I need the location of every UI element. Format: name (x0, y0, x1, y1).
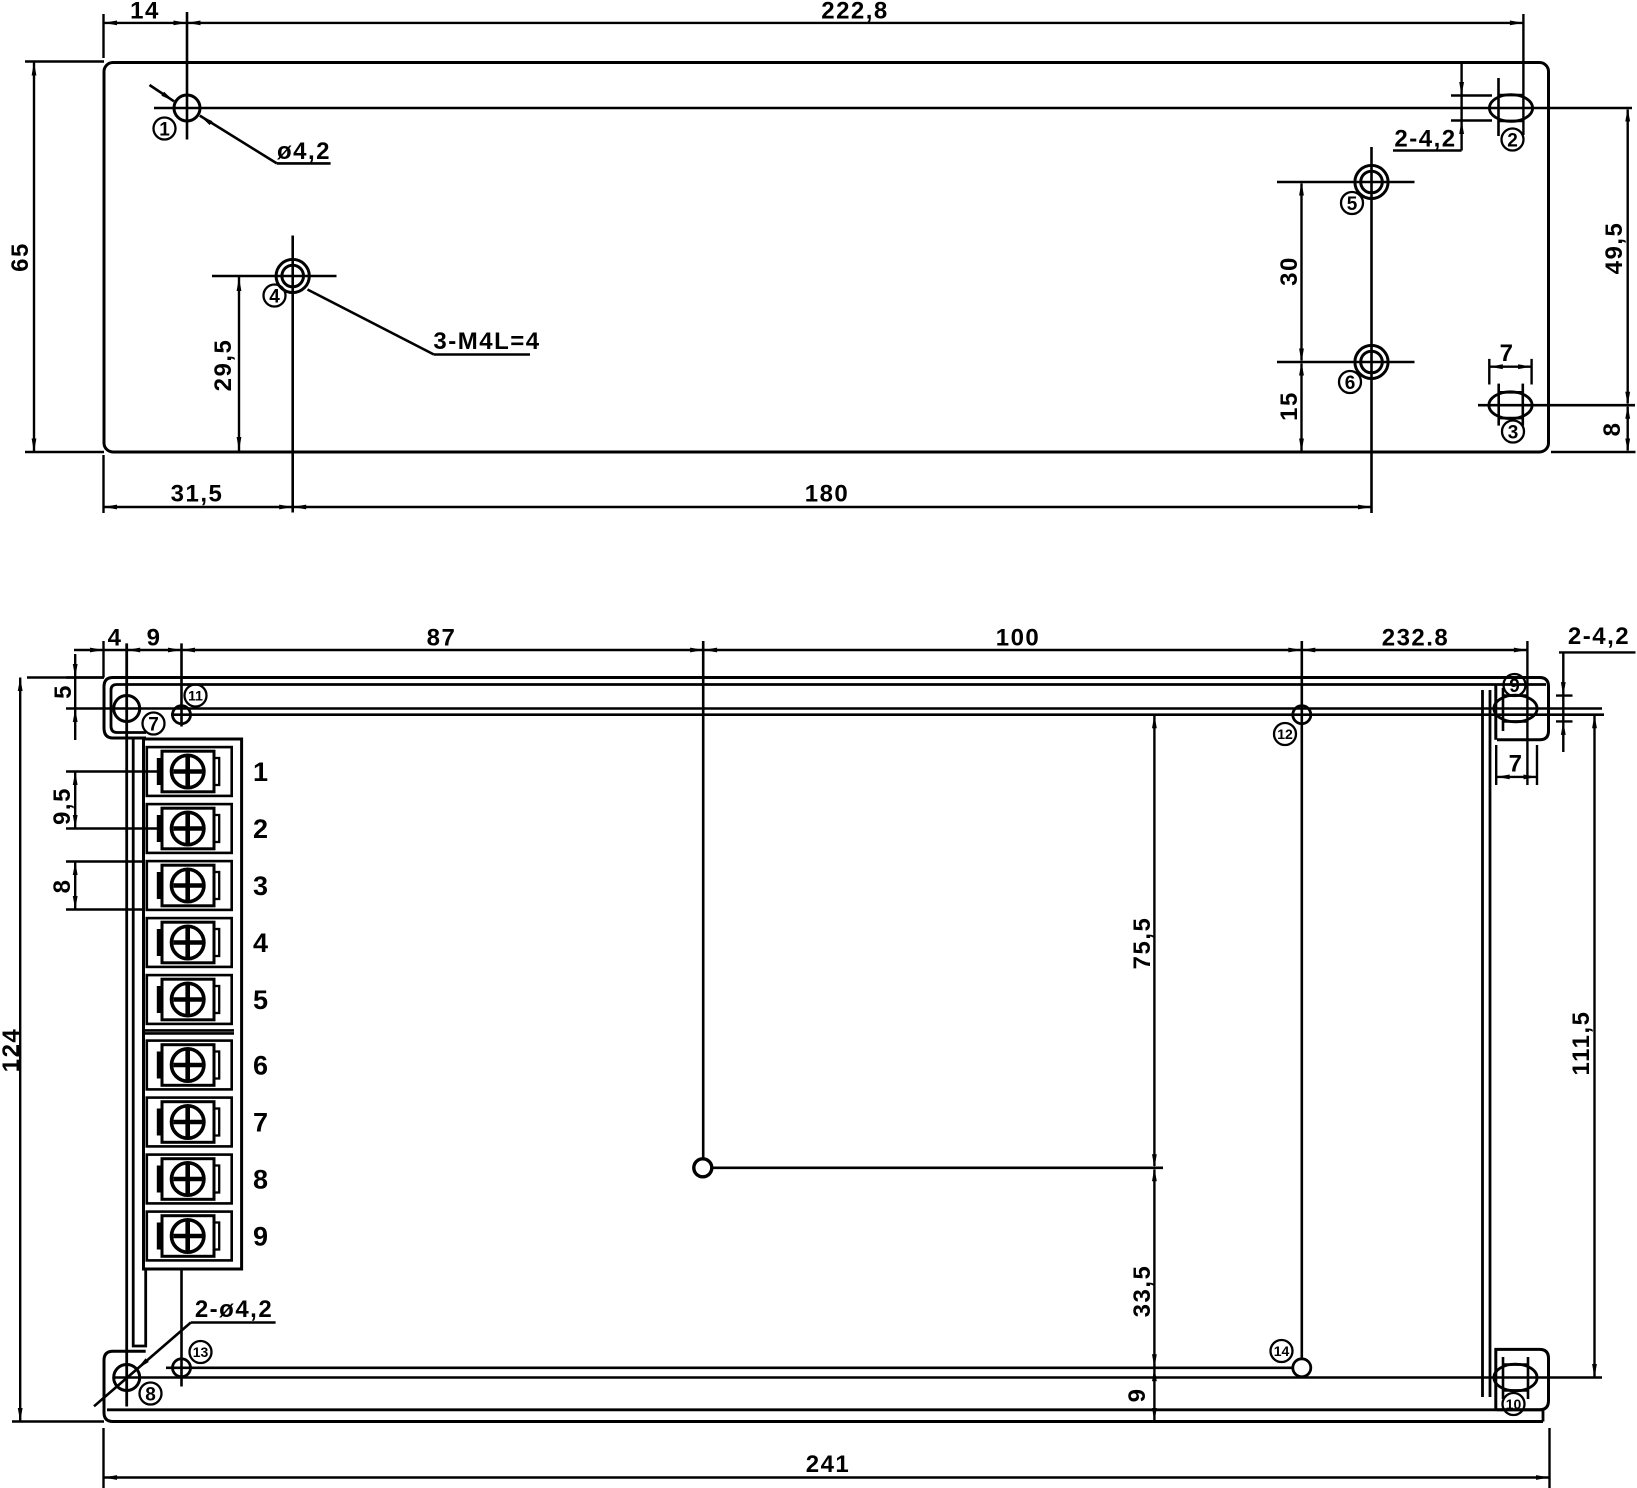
svg-text:5: 5 (50, 684, 77, 699)
svg-text:4: 4 (253, 928, 268, 958)
svg-text:33,5: 33,5 (1129, 1265, 1156, 1318)
svg-text:2-4,2: 2-4,2 (1394, 126, 1456, 153)
svg-text:6: 6 (1345, 373, 1356, 394)
svg-text:2-4,2: 2-4,2 (1568, 623, 1630, 650)
svg-text:65: 65 (7, 242, 34, 272)
svg-text:7: 7 (148, 714, 159, 735)
svg-text:8: 8 (49, 879, 76, 894)
svg-text:7: 7 (1500, 340, 1515, 367)
svg-text:8: 8 (145, 1384, 156, 1405)
svg-text:8: 8 (253, 1165, 268, 1195)
svg-text:9: 9 (253, 1222, 268, 1252)
svg-text:14: 14 (130, 0, 160, 25)
svg-text:7: 7 (253, 1108, 268, 1138)
svg-text:2-ø4,2: 2-ø4,2 (195, 1296, 273, 1323)
svg-text:7: 7 (1509, 751, 1524, 778)
svg-text:4: 4 (269, 286, 280, 307)
svg-text:6: 6 (253, 1051, 268, 1081)
svg-text:11: 11 (188, 688, 203, 704)
svg-text:1: 1 (253, 757, 268, 787)
svg-text:111,5: 111,5 (1568, 1011, 1595, 1076)
svg-text:49,5: 49,5 (1601, 222, 1628, 275)
svg-text:124: 124 (0, 1028, 25, 1073)
svg-text:4: 4 (108, 625, 123, 652)
svg-text:241: 241 (806, 1451, 851, 1478)
svg-text:5: 5 (1347, 194, 1358, 215)
svg-text:13: 13 (193, 1344, 209, 1360)
svg-text:9: 9 (1124, 1388, 1151, 1403)
svg-text:222,8: 222,8 (821, 0, 889, 25)
svg-text:9: 9 (147, 625, 162, 652)
svg-text:15: 15 (1276, 391, 1303, 421)
svg-text:12: 12 (1277, 726, 1293, 742)
svg-text:ø4,2: ø4,2 (277, 138, 331, 165)
svg-text:31,5: 31,5 (171, 481, 224, 508)
svg-text:10: 10 (1506, 1396, 1522, 1412)
svg-text:9: 9 (1509, 676, 1520, 697)
svg-text:100: 100 (996, 625, 1041, 652)
svg-text:180: 180 (805, 481, 850, 508)
svg-text:14: 14 (1274, 1343, 1290, 1359)
svg-text:29,5: 29,5 (210, 339, 237, 392)
svg-text:8: 8 (1599, 422, 1626, 437)
svg-text:30: 30 (1276, 256, 1303, 286)
svg-text:87: 87 (427, 625, 457, 652)
svg-text:2: 2 (253, 814, 268, 844)
svg-text:3: 3 (253, 871, 268, 901)
svg-text:75,5: 75,5 (1129, 917, 1156, 970)
svg-text:232.8: 232.8 (1382, 625, 1450, 652)
svg-text:3: 3 (1508, 422, 1519, 443)
svg-text:5: 5 (253, 985, 268, 1015)
svg-text:2: 2 (1507, 130, 1518, 151)
svg-text:1: 1 (159, 119, 170, 140)
svg-text:3-M4L=4: 3-M4L=4 (433, 328, 540, 355)
svg-text:9,5: 9,5 (49, 787, 76, 825)
